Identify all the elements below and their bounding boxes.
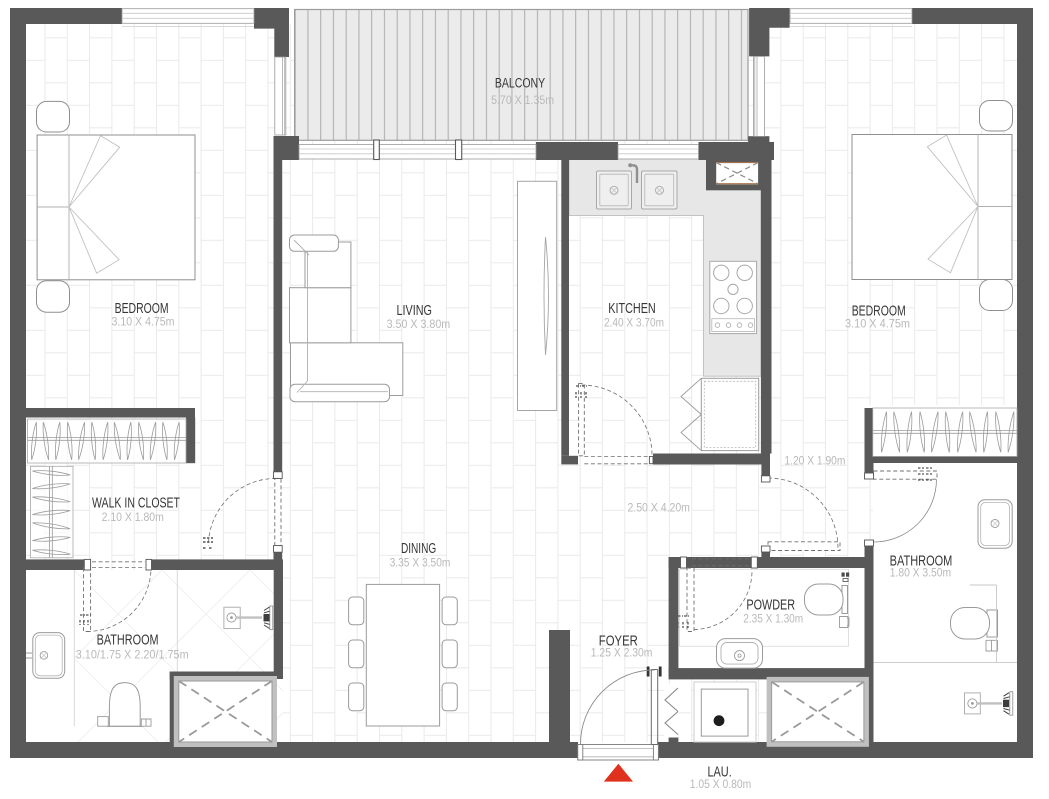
- svg-text:1.05 X 0.80m: 1.05 X 0.80m: [690, 779, 752, 791]
- svg-text:3.10 X 4.75m: 3.10 X 4.75m: [845, 319, 910, 331]
- svg-text:1.25 X 2.30m: 1.25 X 2.30m: [591, 648, 653, 660]
- svg-text:5.70 X 1.35m: 5.70 X 1.35m: [491, 95, 554, 107]
- svg-text:WALK IN CLOSET: WALK IN CLOSET: [92, 495, 180, 512]
- svg-text:BEDROOM: BEDROOM: [115, 300, 169, 317]
- svg-text:KITCHEN: KITCHEN: [608, 300, 656, 317]
- svg-text:3.50 X 3.80m: 3.50 X 3.80m: [387, 319, 451, 331]
- svg-text:3.35 X 3.50m: 3.35 X 3.50m: [390, 558, 451, 570]
- svg-text:DINING: DINING: [401, 540, 436, 557]
- svg-text:1.20 X 1.90m: 1.20 X 1.90m: [784, 456, 845, 468]
- svg-text:BALCONY: BALCONY: [495, 76, 545, 91]
- svg-text:POWDER: POWDER: [746, 597, 795, 614]
- svg-text:BEDROOM: BEDROOM: [852, 303, 906, 320]
- svg-text:2.10 X 1.80m: 2.10 X 1.80m: [102, 512, 164, 524]
- svg-text:3.10/1.75 X 2.20/1.75m: 3.10/1.75 X 2.20/1.75m: [76, 650, 189, 662]
- svg-text:2.50 X 4.20m: 2.50 X 4.20m: [627, 503, 690, 515]
- svg-text:3.10 X 4.75m: 3.10 X 4.75m: [112, 317, 175, 329]
- svg-text:1.80 X 3.50m: 1.80 X 3.50m: [890, 568, 951, 580]
- svg-text:BATHROOM: BATHROOM: [97, 631, 159, 648]
- svg-text:2.40 X 3.70m: 2.40 X 3.70m: [604, 318, 664, 330]
- svg-text:2.35 X 1.30m: 2.35 X 1.30m: [743, 614, 803, 626]
- svg-text:LIVING: LIVING: [396, 302, 432, 319]
